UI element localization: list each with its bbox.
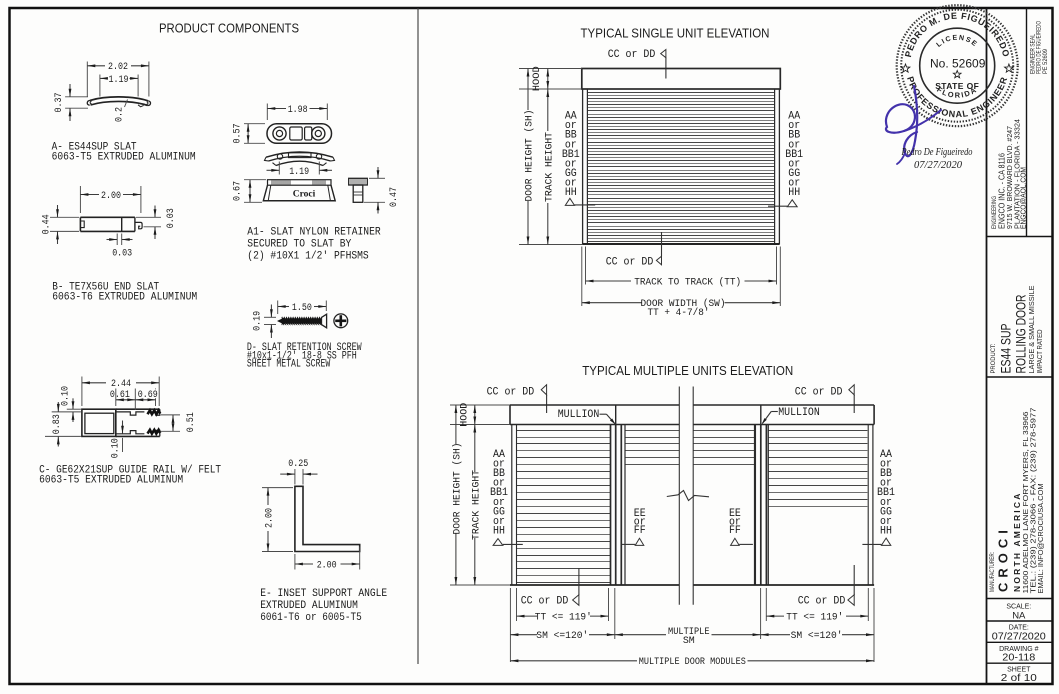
- svg-text:PRODUCT COMPONENTS: PRODUCT COMPONENTS: [159, 21, 299, 36]
- svg-text:MULTIPLE DOOR MODULES: MULTIPLE DOOR MODULES: [639, 656, 746, 668]
- svg-text:2.00: 2.00: [317, 561, 337, 572]
- svg-text:SHEET METAL SCREW: SHEET METAL SCREW: [247, 359, 331, 371]
- svg-text:TRACK TO TRACK (TT): TRACK TO TRACK (TT): [634, 276, 741, 288]
- svg-text:HH: HH: [493, 525, 505, 537]
- svg-text:HH: HH: [880, 525, 892, 537]
- svg-text:CC or DD: CC or DD: [798, 596, 846, 608]
- svg-text:0.10: 0.10: [111, 438, 122, 458]
- svg-text:SM: SM: [683, 636, 695, 647]
- svg-text:0.19: 0.19: [252, 311, 263, 331]
- svg-text:TRACK HEIGHT: TRACK HEIGHT: [470, 470, 482, 540]
- svg-text:PRODUCT:: PRODUCT:: [990, 343, 997, 373]
- svg-text:DATE:: DATE:: [1009, 625, 1029, 632]
- svg-text:TYPICAL MULTIPLE UNITS ELEVATI: TYPICAL MULTIPLE UNITS ELEVATION: [582, 363, 793, 378]
- svg-text:2.02: 2.02: [108, 62, 128, 73]
- svg-text:No. 52609: No. 52609: [930, 57, 986, 71]
- svg-text:FF: FF: [634, 525, 646, 537]
- svg-text:0.83: 0.83: [52, 414, 63, 434]
- svg-text:Croci: Croci: [293, 190, 316, 200]
- svg-text:0.37: 0.37: [54, 93, 65, 113]
- svg-text:6061-T6 or 6005-T5: 6061-T6 or 6005-T5: [260, 612, 362, 624]
- svg-text:STATE OF: STATE OF: [935, 81, 979, 91]
- svg-text:ENGCO@AOL.COM: ENGCO@AOL.COM: [1019, 167, 1028, 229]
- svg-text:0.69: 0.69: [138, 390, 158, 401]
- svg-text:SM <=120': SM <=120': [536, 630, 588, 642]
- svg-text:PEDRO DE FIGUEIREDO: PEDRO DE FIGUEIREDO: [1037, 21, 1043, 74]
- svg-text:EMAIL: INFO@CROCIUSA.COM: EMAIL: INFO@CROCIUSA.COM: [1036, 484, 1045, 594]
- svg-text:TT <= 119': TT <= 119': [786, 612, 843, 624]
- svg-text:1.19: 1.19: [289, 167, 309, 178]
- svg-text:SECURED TO SLAT BY: SECURED TO SLAT BY: [247, 238, 351, 250]
- svg-text:HH: HH: [788, 187, 800, 199]
- svg-text:07/27/2020: 07/27/2020: [914, 159, 962, 171]
- svg-text:0.10: 0.10: [61, 386, 72, 406]
- svg-text:6063-T6 EXTRUDED ALUMINUM: 6063-T6 EXTRUDED ALUMINUM: [52, 292, 197, 304]
- svg-text:0.47: 0.47: [389, 187, 400, 207]
- svg-text:MULLION: MULLION: [558, 409, 600, 421]
- svg-text:TT <= 119': TT <= 119': [535, 612, 592, 624]
- svg-text:DOOR HEIGHT (SH): DOOR HEIGHT (SH): [524, 110, 536, 202]
- svg-text:ES44 SUP: ES44 SUP: [998, 324, 1014, 374]
- svg-text:A1- SLAT NYLON RETAINER: A1- SLAT NYLON RETAINER: [247, 226, 381, 238]
- svg-text:0.44: 0.44: [42, 214, 53, 234]
- svg-text:NA: NA: [1012, 611, 1026, 622]
- svg-text:EXTRUDED ALUMINUM: EXTRUDED ALUMINUM: [260, 600, 358, 612]
- svg-text:0.03: 0.03: [112, 248, 132, 259]
- svg-text:CC or DD: CC or DD: [487, 386, 535, 398]
- svg-text:HOOD: HOOD: [531, 66, 543, 91]
- svg-text:20-118: 20-118: [1002, 653, 1035, 664]
- svg-text:0.25: 0.25: [288, 459, 308, 470]
- svg-text:IMPACT RATED: IMPACT RATED: [1035, 329, 1044, 373]
- svg-text:0.61: 0.61: [110, 390, 130, 401]
- svg-text:SCALE:: SCALE:: [1006, 604, 1031, 611]
- svg-text:TRACK HEIGHT: TRACK HEIGHT: [543, 132, 555, 202]
- svg-text:0.2: 0.2: [115, 107, 126, 122]
- svg-text:CROCI: CROCI: [996, 525, 1011, 592]
- svg-text:2.00: 2.00: [101, 191, 121, 202]
- svg-text:Pedro De Figueiredo: Pedro De Figueiredo: [901, 146, 973, 158]
- svg-text:CC or DD: CC or DD: [795, 386, 843, 398]
- svg-text:1.50: 1.50: [292, 303, 312, 314]
- svg-text:6063-T5 EXTRUDED ALUMINUM: 6063-T5 EXTRUDED ALUMINUM: [52, 152, 196, 164]
- svg-text:MULLION: MULLION: [778, 407, 820, 419]
- svg-text:PE 52609: PE 52609: [1043, 48, 1049, 74]
- svg-text:2.44: 2.44: [111, 379, 131, 390]
- svg-text:2 of 10: 2 of 10: [1001, 673, 1038, 684]
- svg-text:FF: FF: [729, 525, 741, 537]
- svg-text:TYPICAL SINGLE UNIT ELEVATION: TYPICAL SINGLE UNIT ELEVATION: [581, 26, 770, 41]
- svg-text:1.19: 1.19: [109, 75, 129, 86]
- svg-text:2.00: 2.00: [264, 508, 275, 528]
- svg-text:0.57: 0.57: [233, 124, 244, 144]
- svg-text:0.67: 0.67: [233, 181, 244, 201]
- svg-text:TT + 4-7/8': TT + 4-7/8': [648, 307, 710, 319]
- svg-text:(2) #10X1 1/2' PFHSMS: (2) #10X1 1/2' PFHSMS: [247, 250, 369, 262]
- svg-text:0.03: 0.03: [166, 208, 177, 228]
- svg-text:CC or DD: CC or DD: [606, 256, 654, 268]
- svg-text:E- INSET SUPPORT ANGLE: E- INSET SUPPORT ANGLE: [260, 588, 387, 600]
- svg-text:CC or DD: CC or DD: [608, 49, 656, 61]
- svg-text:CC or DD: CC or DD: [521, 596, 569, 608]
- svg-text:07/27/2020: 07/27/2020: [992, 632, 1046, 643]
- svg-text:0.51: 0.51: [186, 412, 197, 432]
- svg-text:6063-T5 EXTRUDED ALUMINUM: 6063-T5 EXTRUDED ALUMINUM: [39, 475, 183, 487]
- svg-text:1.98: 1.98: [288, 105, 308, 116]
- svg-text:HH: HH: [565, 187, 577, 199]
- svg-text:DOOR HEIGHT (SH): DOOR HEIGHT (SH): [451, 443, 463, 535]
- svg-text:SM <=120': SM <=120': [791, 630, 843, 642]
- svg-text:HOOD: HOOD: [459, 403, 471, 427]
